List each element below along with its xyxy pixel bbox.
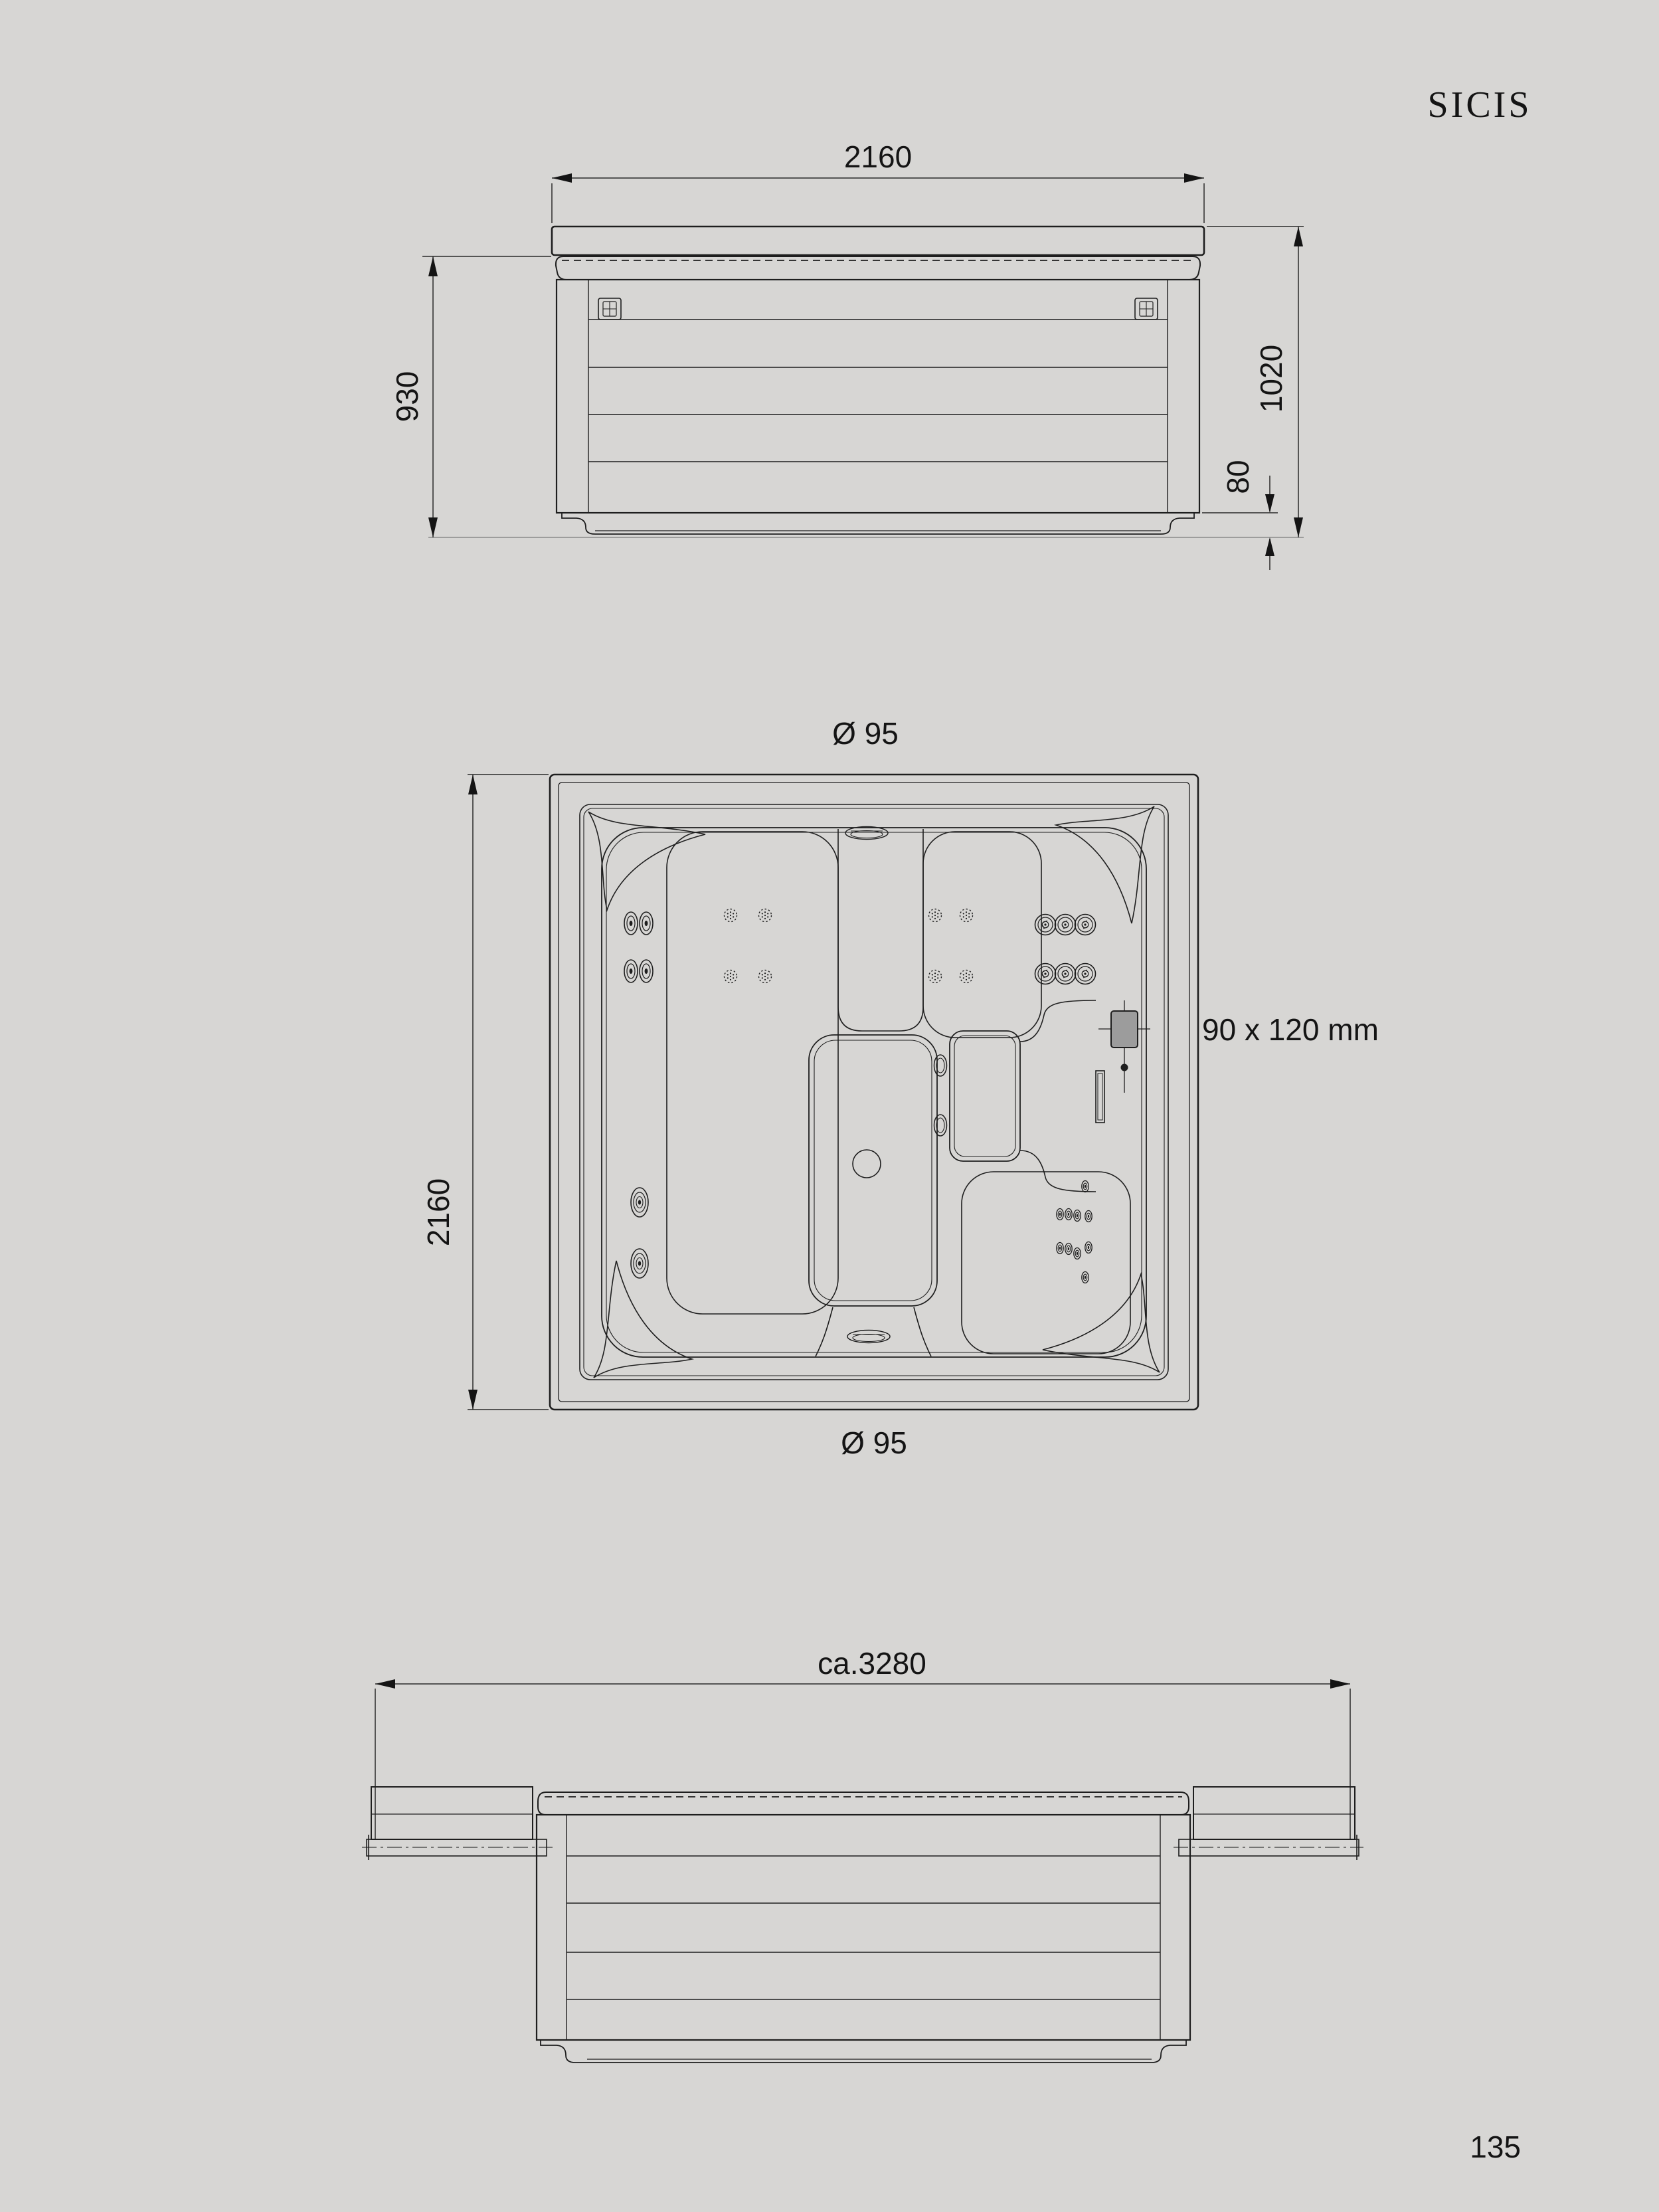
side-cabinet-body (537, 1815, 1190, 2040)
corner-pillow-top-right (1056, 806, 1154, 923)
armrest-contour-lower (1020, 1151, 1096, 1192)
plan-diameter-bottom-label: Ø 95 (841, 1426, 907, 1460)
armrest-contour-upper (1020, 1000, 1096, 1042)
front-body-height-label: 930 (390, 371, 424, 422)
footwell (950, 1031, 1020, 1161)
drain (853, 1150, 881, 1178)
bottom-right-micro-jets (1057, 1181, 1092, 1283)
pipe-fitting-top (845, 827, 888, 840)
right-seat-air-jets (929, 909, 973, 983)
front-width-label: 2160 (844, 139, 912, 174)
side-cover-lid (538, 1792, 1189, 1815)
plan-diameter-top-label: Ø 95 (832, 716, 899, 751)
control-panel-anchor-dot (1121, 1064, 1128, 1071)
left-wall-jets (624, 912, 653, 982)
cover-latch-left (598, 298, 621, 320)
plan-deck-rim (580, 804, 1168, 1380)
plan-basin (602, 828, 1146, 1357)
corner-pillow-top-left (588, 812, 705, 910)
side-elevation-view: ca.3280 (362, 1646, 1363, 2063)
plan-depth-label: 2160 (421, 1178, 456, 1246)
front-total-height-label: 1020 (1254, 345, 1288, 413)
folded-cover-right (1174, 1787, 1363, 1860)
plan-depth-dimension (468, 775, 549, 1410)
lower-left-wall-jets (631, 1188, 648, 1278)
technical-drawing-page: SICIS 2160 (0, 0, 1659, 2212)
plan-outer-frame (550, 775, 1198, 1410)
side-total-width-label: ca.3280 (818, 1646, 926, 1681)
page-number: 135 (1470, 2130, 1521, 2164)
cover-lid (552, 227, 1204, 255)
left-seat-air-jets (725, 909, 772, 983)
right-seat-contour (923, 832, 1041, 1038)
lounger-knob-lower (934, 1115, 947, 1136)
front-width-dimension (552, 173, 1204, 223)
left-bench-contour (667, 832, 838, 1314)
plan-view: Ø 95 Ø 95 (421, 716, 1379, 1460)
front-base-height-label: 80 (1221, 460, 1255, 494)
side-cabinet-slat-lines (567, 1856, 1160, 1999)
front-elevation-view: 2160 (390, 139, 1304, 570)
brand-logo: SICIS (1428, 84, 1532, 126)
base-plinth (562, 513, 1194, 534)
corner-pillow-bottom-left (594, 1261, 692, 1378)
pipe-fitting-bottom (847, 1331, 890, 1343)
front-body-height-dimension (422, 256, 551, 537)
waterfall-slot (1096, 1071, 1104, 1123)
lounger (809, 1035, 937, 1306)
cabinet-body (557, 280, 1199, 513)
lounger-flare-left (816, 1307, 833, 1356)
cover-edge-strip (556, 256, 1200, 280)
bottom-right-seat-contour (962, 1172, 1130, 1354)
center-backrest-contour (838, 829, 923, 1031)
right-wall-hydro-jets (1035, 915, 1096, 984)
side-base-plinth (541, 2040, 1186, 2063)
lounger-flare-right (914, 1307, 931, 1356)
cabinet-slat-lines (588, 320, 1168, 462)
control-panel (1098, 1000, 1150, 1093)
control-panel-label: 90 x 120 mm (1202, 1012, 1379, 1047)
lounger-knob-upper (934, 1055, 947, 1076)
cover-latch-right (1135, 298, 1158, 320)
folded-cover-left (362, 1787, 553, 1860)
